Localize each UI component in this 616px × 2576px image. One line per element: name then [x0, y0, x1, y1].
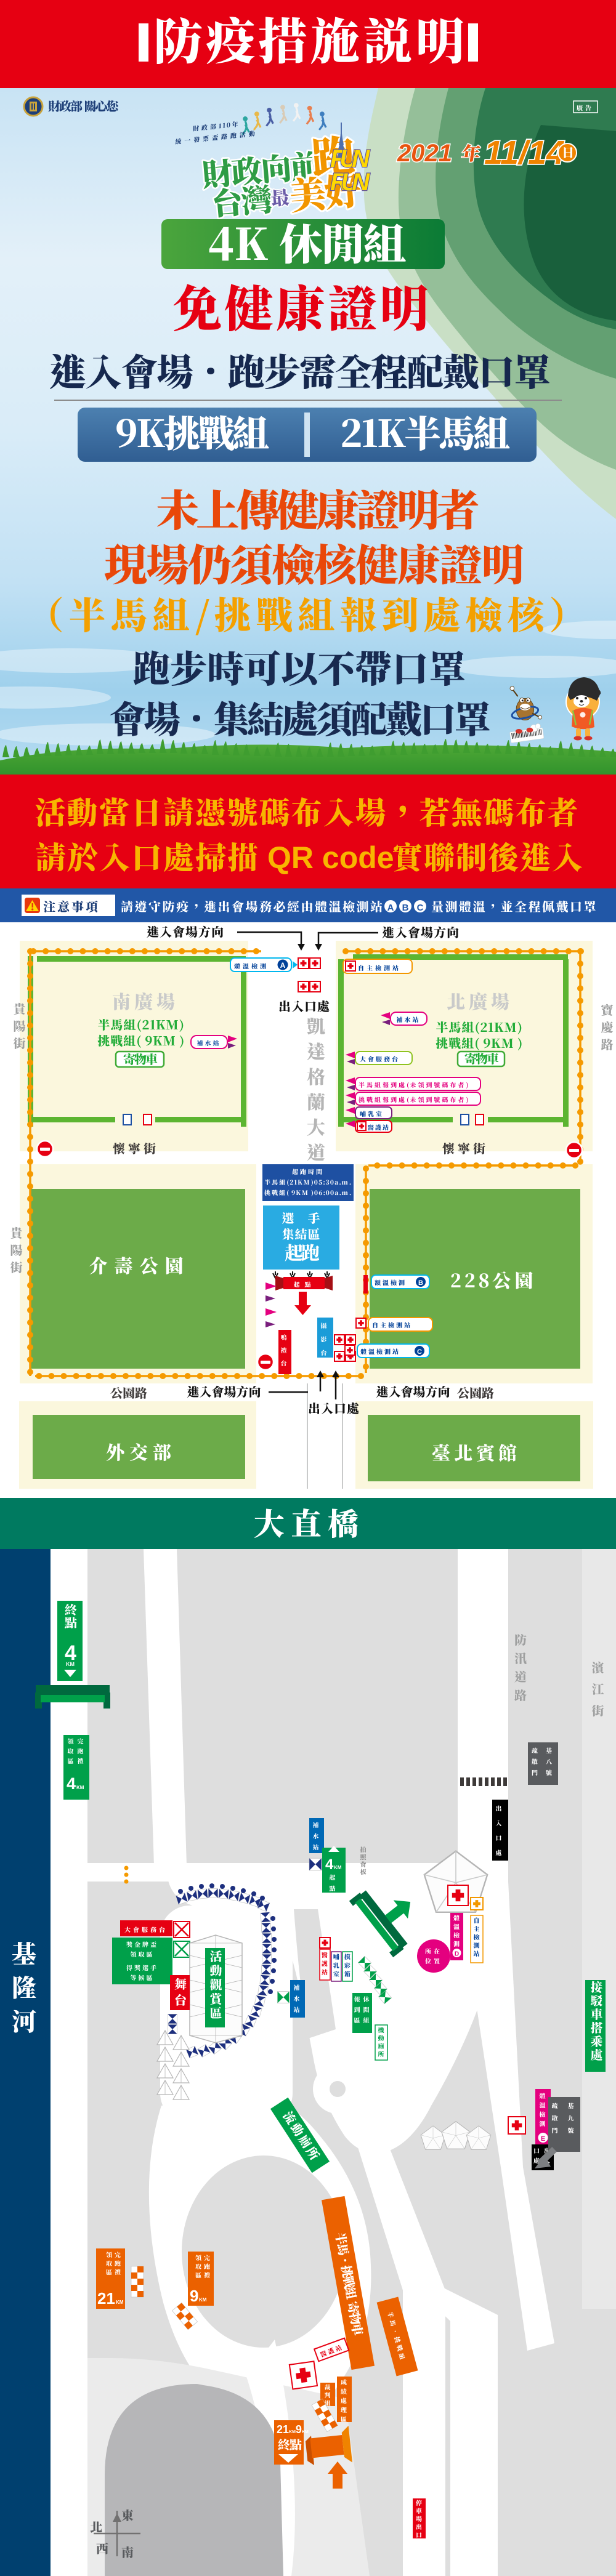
svg-text:A: A — [387, 903, 394, 913]
svg-text:KM: KM — [66, 1661, 75, 1667]
svg-text:KM: KM — [199, 2297, 207, 2303]
svg-text:KM: KM — [76, 1785, 84, 1790]
svg-text:B: B — [402, 903, 409, 913]
svg-text:E: E — [541, 2135, 545, 2143]
svg-text:21: 21 — [97, 2289, 115, 2308]
svg-text:D: D — [455, 1951, 459, 1958]
svg-text:QR code: QR code — [267, 840, 394, 875]
svg-text:9: 9 — [190, 2287, 198, 2305]
svg-text:KM: KM — [334, 1865, 342, 1870]
svg-text:11/14: 11/14 — [484, 134, 565, 171]
svg-text:B: B — [418, 1279, 423, 1287]
svg-text:C: C — [417, 903, 424, 913]
svg-text:KM: KM — [116, 2300, 124, 2305]
svg-text:RUN: RUN — [330, 169, 370, 196]
svg-text:A: A — [280, 961, 286, 970]
svg-text:4: 4 — [325, 1856, 334, 1873]
svg-text:4: 4 — [67, 1774, 76, 1793]
svg-text:2021: 2021 — [397, 140, 452, 167]
svg-text:C: C — [417, 1348, 422, 1356]
